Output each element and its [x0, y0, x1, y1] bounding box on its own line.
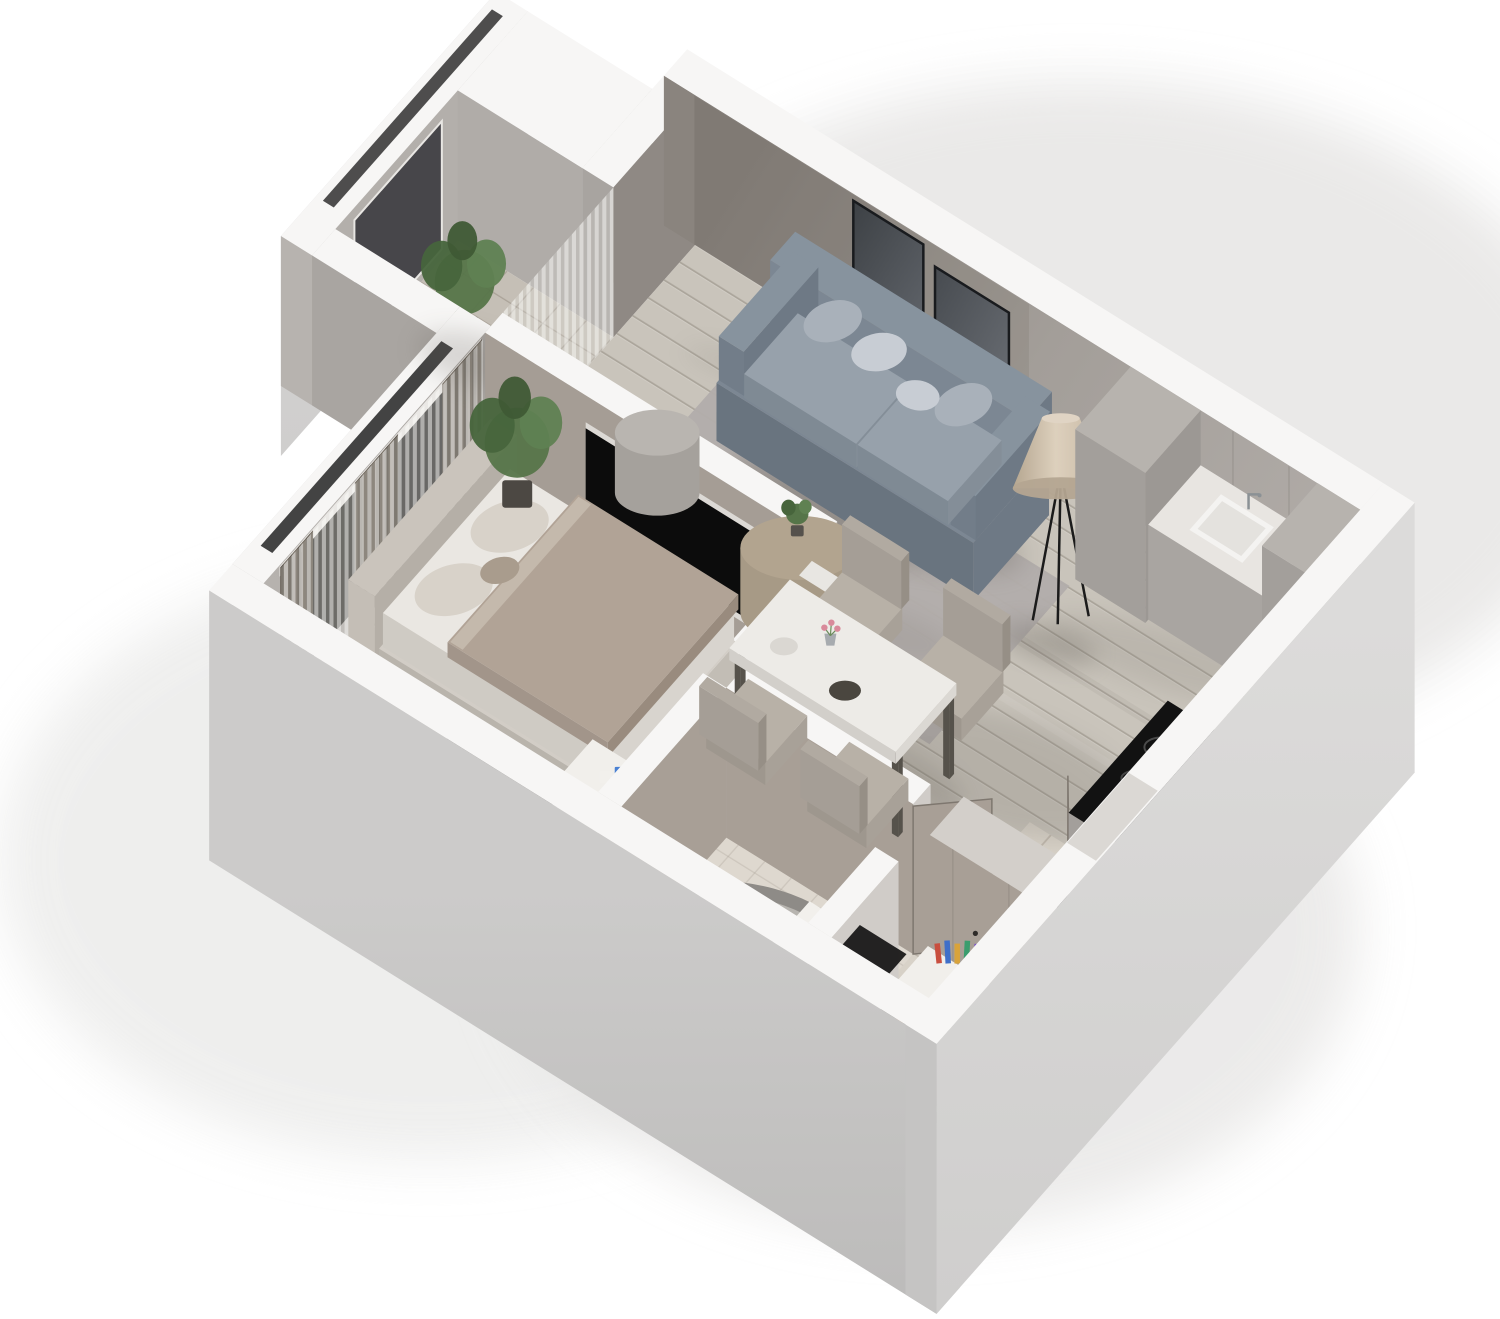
dining-plate-dark	[829, 681, 861, 701]
floor-plan-render	[0, 0, 1500, 1319]
pouf	[615, 410, 700, 516]
floor-plan-stage	[0, 0, 1500, 1319]
dining-plate-light	[770, 637, 798, 655]
wardrobe-handle	[973, 931, 978, 936]
